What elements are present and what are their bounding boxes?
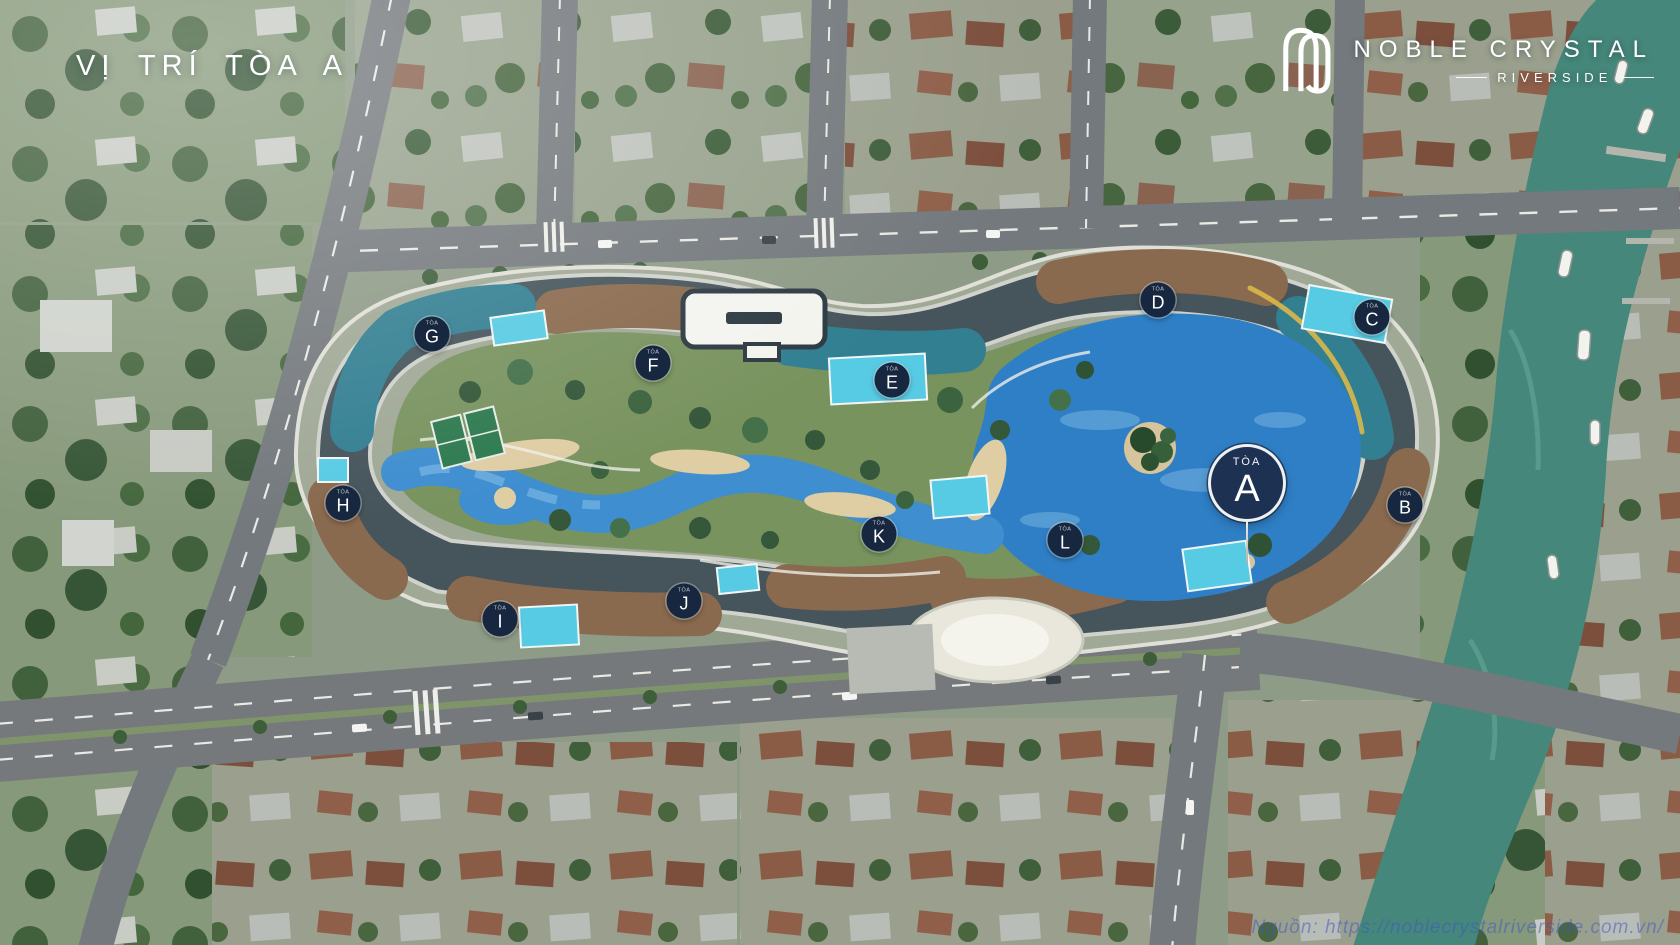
brand-subtitle-row: RIVERSIDE	[1456, 70, 1654, 85]
brand-logo: NOBLE CRYSTAL RIVERSIDE	[1279, 20, 1654, 98]
page-title: VỊ TRÍ TÒA A	[76, 50, 348, 83]
brand-text: NOBLE CRYSTAL RIVERSIDE	[1353, 20, 1654, 85]
noble-crystal-monogram-icon	[1279, 20, 1333, 98]
brand-subtitle: RIVERSIDE	[1497, 70, 1612, 85]
aerial-map	[0, 0, 1680, 945]
source-credit: Nguồn: https://noblecrystalriverside.com…	[1251, 917, 1664, 939]
rule-right	[1622, 77, 1654, 78]
light-haze	[0, 0, 1680, 945]
masterplan-render: TÒAATÒABTÒACTÒADTÒAETÒAFTÒAGTÒAHTÒAITÒAJ…	[0, 0, 1680, 945]
rule-left	[1456, 77, 1488, 78]
brand-name: NOBLE CRYSTAL	[1353, 36, 1654, 64]
